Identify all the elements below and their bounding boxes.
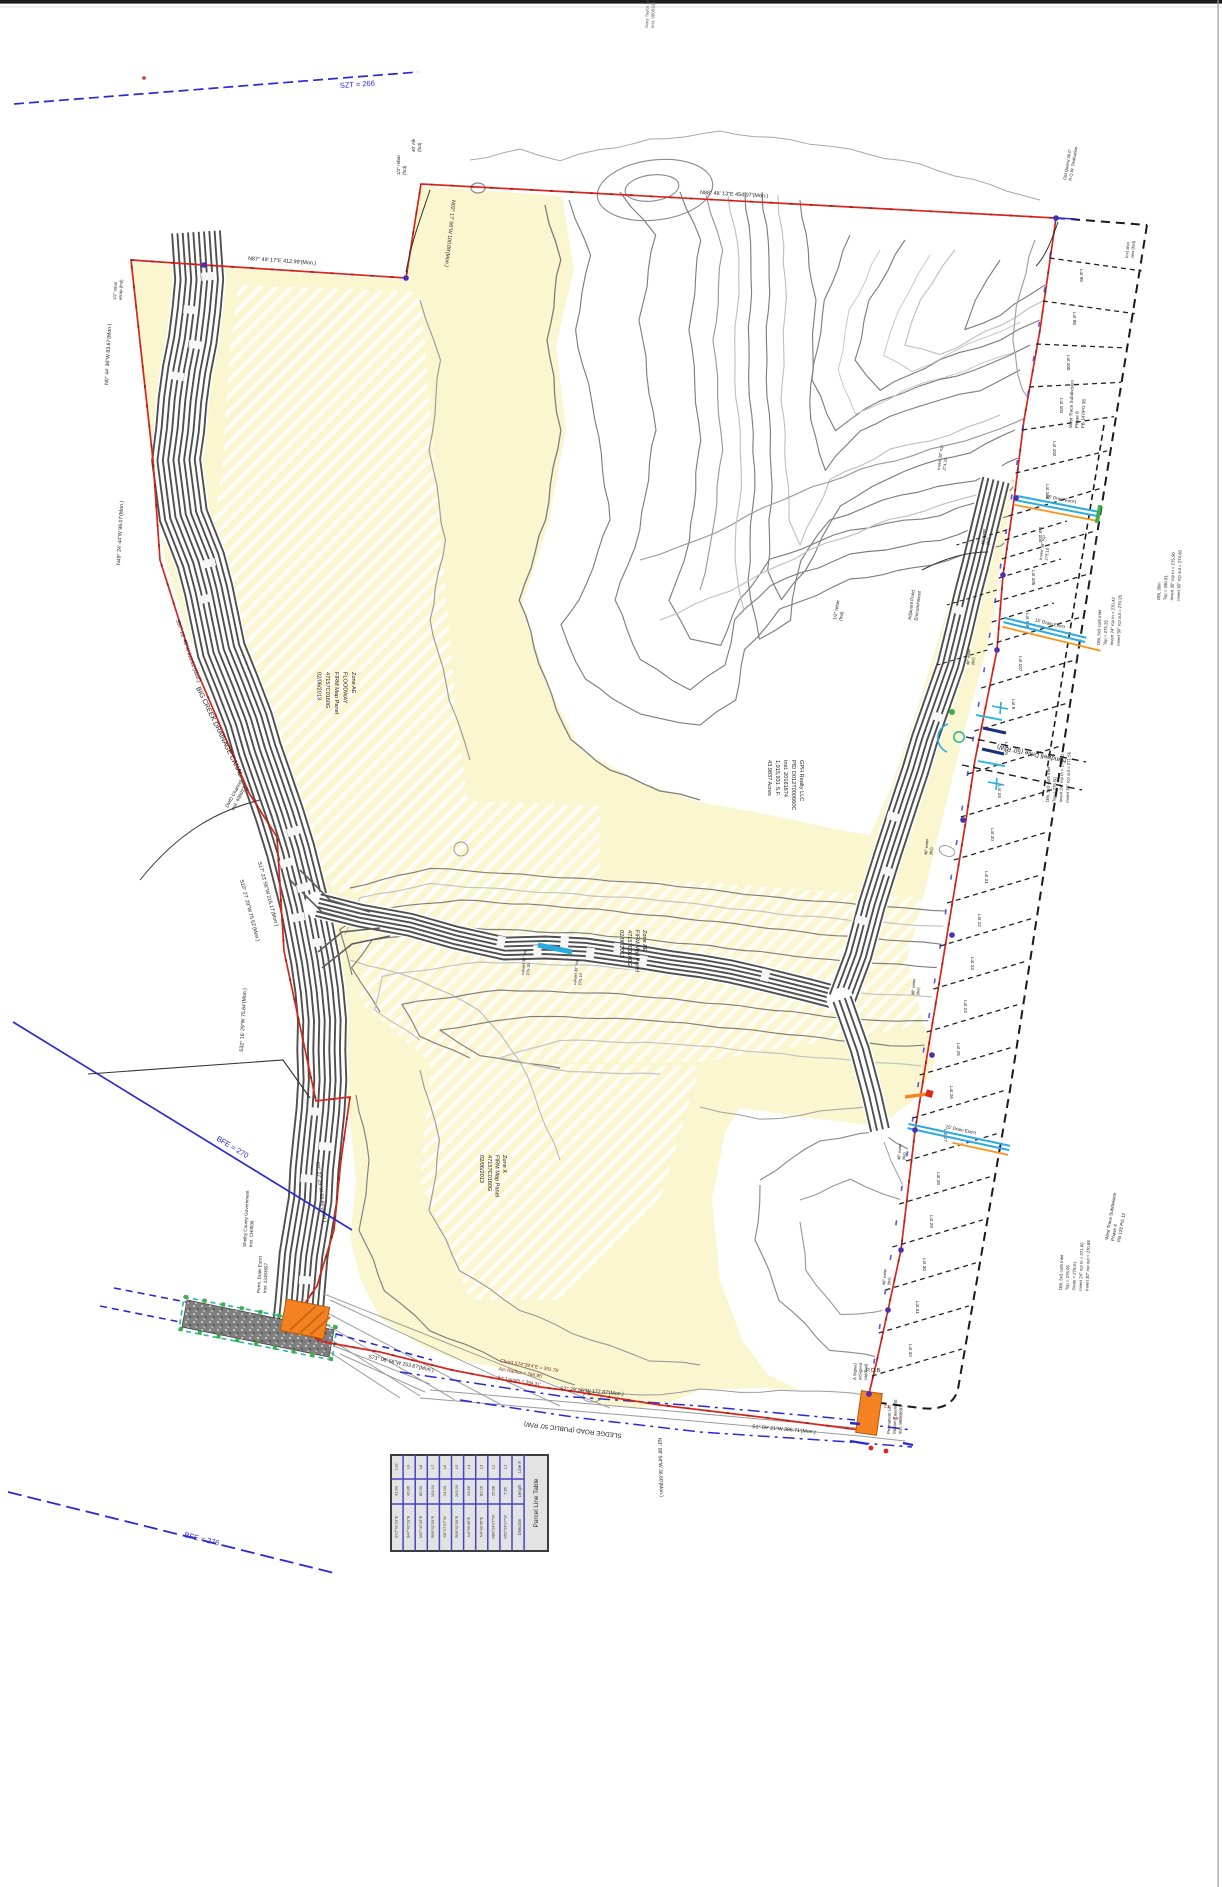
svg-text:Zone X: Zone X [501, 1155, 507, 1173]
svg-text:Top = 280.81: Top = 280.81 [1163, 575, 1169, 601]
svg-text:Inst. 20161674: Inst. 20161674 [782, 760, 788, 797]
svg-text:DBL 30in: DBL 30in [1156, 582, 1162, 600]
svg-text:FIRM Map Panel: FIRM Map Panel [493, 1155, 499, 1197]
svg-text:Lot 23: Lot 23 [970, 957, 975, 970]
svg-text:(tbd): (tbd) [886, 1276, 892, 1285]
svg-text:103.91: 103.91 [430, 1484, 435, 1497]
svg-text:S89°42'33"E: S89°42'33"E [454, 1515, 459, 1538]
svg-text:C1: C1 [884, 1404, 890, 1409]
svg-text:23.86: 23.86 [466, 1485, 471, 1496]
svg-text:Lot 26: Lot 26 [949, 1086, 954, 1099]
svg-text:Zone AE: Zone AE [641, 930, 647, 952]
svg-text:Lot 105: Lot 105 [1031, 570, 1036, 586]
svg-text:47157C0160G: 47157C0160G [324, 672, 330, 708]
svg-text:80.26: 80.26 [478, 1485, 483, 1496]
svg-text:GPH Realty LLC: GPH Realty LLC [798, 760, 804, 801]
svg-text:L6: L6 [442, 1464, 447, 1469]
svg-text:L8: L8 [418, 1464, 423, 1469]
svg-text:L7: L7 [430, 1464, 435, 1469]
svg-text:L1: L1 [503, 1464, 508, 1469]
svg-text:Top = 276.06: Top = 276.06 [1065, 1265, 1071, 1291]
svg-text:Lot 100: Lot 100 [1066, 355, 1071, 371]
svg-text:Lot 32: Lot 32 [908, 1344, 913, 1357]
svg-text:Top = 275.26: Top = 275.26 [1103, 620, 1109, 646]
svg-text:1,915,931 S.F.: 1,915,931 S.F. [774, 760, 780, 797]
svg-text:Parcel Line Table: Parcel Line Table [533, 1478, 540, 1527]
svg-text:L10: L10 [394, 1463, 399, 1470]
svg-text:N4°30'45"E: N4°30'45"E [466, 1516, 471, 1537]
svg-text:S72°41'19"E: S72°41'19"E [394, 1515, 399, 1538]
svg-text:Lot 30: Lot 30 [922, 1258, 927, 1271]
svg-text:S0°17'27"W: S0°17'27"W [442, 1516, 447, 1538]
svg-text:(tbd): (tbd) [928, 846, 934, 855]
svg-text:N87°42'33"E: N87°42'33"E [418, 1515, 423, 1538]
svg-text:(fnd): (fnd) [402, 165, 407, 175]
svg-text:PB 147/PG 36: PB 147/PG 36 [1080, 398, 1086, 428]
svg-text:203.33: 203.33 [454, 1484, 459, 1497]
svg-text:Lot 28: Lot 28 [936, 1172, 941, 1185]
svg-text:Lot 19: Lot 19 [997, 785, 1002, 798]
svg-text:FIRM Map Panel: FIRM Map Panel [633, 930, 639, 972]
svg-text:43.9837 Acres: 43.9837 Acres [766, 760, 772, 796]
svg-text:Lot 96: Lot 96 [1079, 269, 1084, 282]
svg-text:PID D012T000660C: PID D012T000660C [790, 760, 796, 810]
svg-text:(tbd): (tbd) [901, 1151, 907, 1160]
svg-text:02/06/2013: 02/06/2013 [316, 672, 322, 700]
svg-text:Length: Length [517, 1484, 522, 1497]
svg-text:Grate = 276.01: Grate = 276.01 [1071, 1261, 1077, 1291]
svg-text:Lot 98: Lot 98 [1072, 312, 1077, 325]
svg-text:(tbd): (tbd) [970, 656, 976, 665]
svg-text:cap(Fnd): cap(Fnd) [863, 1363, 869, 1381]
svg-text:FIRM Map Panel: FIRM Map Panel [333, 672, 339, 714]
svg-text:Inst. 9800332: Inst. 9800332 [650, 1, 656, 28]
svg-text:Top = 276.50: Top = 276.50 [1052, 777, 1058, 803]
svg-text:40' Alk: 40' Alk [411, 138, 416, 152]
svg-text:25.88: 25.88 [490, 1485, 495, 1496]
svg-text:N4°30'45"E: N4°30'45"E [478, 1516, 483, 1537]
svg-text:41.83: 41.83 [394, 1485, 399, 1496]
svg-text:1/2" rebar: 1/2" rebar [396, 155, 401, 175]
svg-text:L9: L9 [406, 1464, 411, 1469]
svg-text:7.86: 7.86 [503, 1486, 508, 1495]
svg-text:Lot 21: Lot 21 [984, 871, 989, 884]
svg-text:L2: L2 [490, 1464, 495, 1469]
svg-text:(tbd): (tbd) [985, 536, 991, 545]
svg-text:Lot 20: Lot 20 [990, 828, 995, 841]
svg-text:Lot 8: Lot 8 [1011, 699, 1016, 710]
svg-text:Line #: Line # [517, 1461, 522, 1473]
svg-text:Lot 25: Lot 25 [956, 1043, 961, 1056]
svg-text:Lot 24: Lot 24 [963, 1000, 968, 1013]
svg-text:42.86: 42.86 [406, 1485, 411, 1496]
svg-text:Zone AE: Zone AE [350, 672, 356, 694]
svg-text:L3: L3 [478, 1464, 483, 1469]
svg-text:47157C0160G: 47157C0160G [486, 1155, 492, 1191]
svg-text:S47°42'19"E: S47°42'19"E [406, 1515, 411, 1538]
svg-text:Lot 22: Lot 22 [977, 914, 982, 927]
svg-text:Lot 29: Lot 29 [929, 1215, 934, 1228]
svg-text:24.00: 24.00 [442, 1485, 447, 1496]
svg-text:N60°24'27"W: N60°24'27"W [503, 1515, 508, 1539]
svg-text:Direction: Direction [517, 1518, 522, 1535]
svg-text:C2: C2 [893, 1416, 899, 1421]
svg-text:S89°42'33"E: S89°42'33"E [430, 1515, 435, 1538]
svg-text:P.O.B.: P.O.B. [866, 1368, 882, 1374]
svg-text:Lot 107: Lot 107 [1018, 656, 1023, 672]
svg-text:47157C0160G: 47157C0160G [626, 930, 632, 966]
svg-text:02/06/2013: 02/06/2013 [618, 930, 624, 958]
svg-text:(fnd): (fnd) [417, 142, 422, 152]
svg-text:02/06/2013: 02/06/2013 [478, 1155, 484, 1183]
svg-text:Lot 102: Lot 102 [1052, 441, 1057, 457]
svg-text:Lot 106: Lot 106 [1025, 613, 1030, 629]
svg-text:Lot 101: Lot 101 [1059, 398, 1064, 414]
svg-text:Lot 31: Lot 31 [915, 1301, 920, 1314]
svg-text:(tbd): (tbd) [915, 986, 921, 995]
svg-text:Phase 8: Phase 8 [1074, 411, 1080, 428]
svg-text:L4: L4 [466, 1464, 471, 1469]
svg-text:N89°24'27"W: N89°24'27"W [490, 1515, 495, 1539]
svg-text:85.00: 85.00 [418, 1485, 423, 1496]
svg-text:FLOODWAY: FLOODWAY [341, 672, 347, 704]
svg-text:L5: L5 [454, 1464, 459, 1469]
